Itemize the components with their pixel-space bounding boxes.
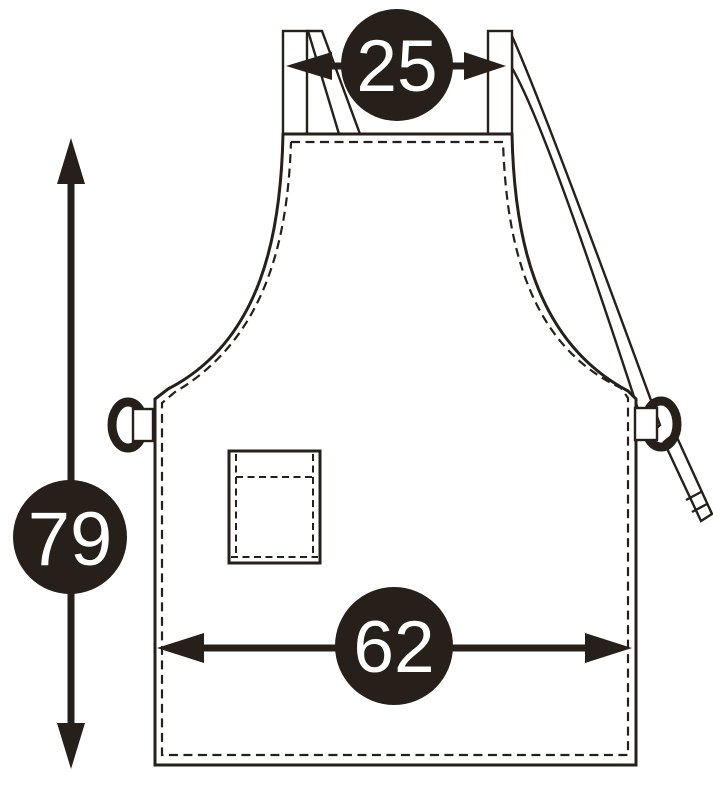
dim-top-width: 25 bbox=[286, 9, 506, 121]
apron-diagram-canvas: 79 25 62 bbox=[0, 0, 713, 794]
neck-strap-right bbox=[488, 31, 512, 134]
left-d-ring-group bbox=[112, 402, 153, 448]
left-ring-tab bbox=[133, 409, 153, 441]
pocket bbox=[229, 451, 320, 563]
right-d-ring-group bbox=[635, 401, 677, 447]
dim-bottom-width-value: 62 bbox=[353, 607, 434, 688]
dim-top-width-value: 25 bbox=[356, 26, 437, 107]
pocket-outline bbox=[229, 451, 320, 563]
dim-height-arrowhead-up-icon bbox=[57, 138, 85, 184]
neck-strap-left bbox=[283, 31, 307, 134]
dim-height-arrowhead-down-icon bbox=[57, 723, 85, 769]
dim-height-value: 79 bbox=[28, 497, 113, 582]
dim-height: 79 bbox=[13, 138, 127, 769]
right-ring-tab bbox=[635, 408, 657, 440]
apron-diagram: 79 25 62 bbox=[0, 0, 713, 794]
